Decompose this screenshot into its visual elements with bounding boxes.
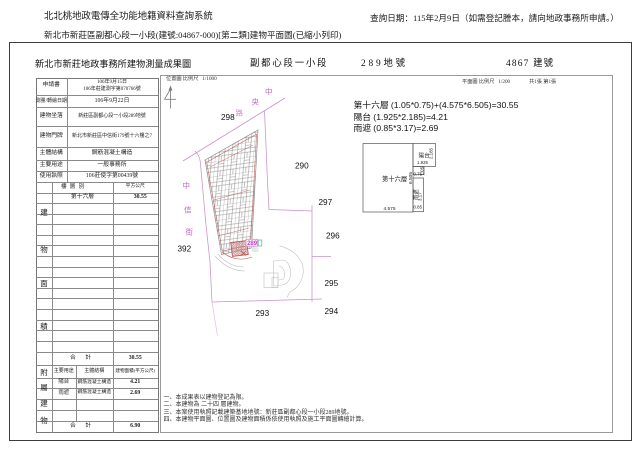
svg-text:中: 中	[183, 180, 191, 190]
svg-text:街: 街	[186, 227, 194, 237]
svg-text:297: 297	[319, 198, 333, 207]
svg-text:1.05: 1.05	[420, 166, 425, 175]
svg-text:0.85: 0.85	[414, 205, 423, 210]
svg-text:3.17: 3.17	[418, 192, 423, 201]
svg-text:392: 392	[178, 245, 192, 254]
svg-text:中: 中	[265, 86, 273, 96]
svg-text:293: 293	[256, 309, 270, 318]
svg-text:294: 294	[325, 307, 339, 316]
svg-text:290: 290	[295, 162, 309, 171]
svg-text:2.185: 2.185	[429, 147, 434, 159]
svg-text:4.575: 4.575	[384, 206, 396, 212]
svg-text:央: 央	[252, 97, 260, 107]
svg-text:信: 信	[184, 205, 192, 215]
svg-text:1.925: 1.925	[417, 160, 429, 165]
svg-text:第十六層: 第十六層	[382, 174, 407, 183]
svg-text:路: 路	[236, 108, 244, 118]
svg-text:296: 296	[326, 232, 340, 241]
svg-text:289: 289	[247, 241, 258, 247]
svg-text:295: 295	[325, 279, 339, 288]
svg-text:298: 298	[221, 113, 235, 122]
